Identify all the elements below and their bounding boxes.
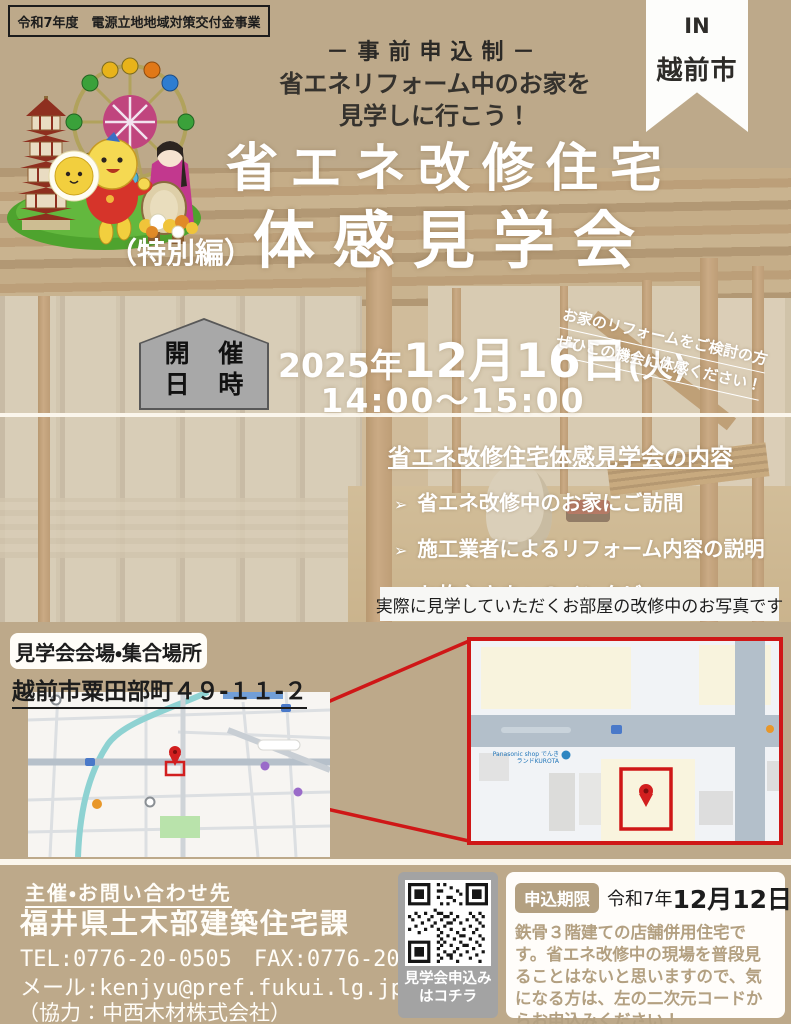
title-prefix: （特別編） bbox=[108, 230, 253, 272]
program-badge: 令和7年度 電源立地地域対策交付金事業 bbox=[8, 5, 270, 37]
venue-label-badge: 見学会会場・集合場所 bbox=[10, 633, 207, 669]
deadline-badge: 申込期限 bbox=[515, 883, 599, 913]
photo-caption: 実際に見学していただくお部屋の改修中のお写真です bbox=[380, 587, 779, 621]
deadline-era: 令和7年 bbox=[607, 885, 672, 911]
main-title-line2-row: （特別編） 体感見学会 bbox=[108, 190, 653, 280]
zoomed-map-poi-icon bbox=[562, 751, 571, 760]
organizer-name: 福井県土木部建築住宅課 bbox=[20, 902, 350, 942]
deadline-note: 鉄骨３階建ての店舗併用住宅です。省エネ改修中の現場を普段見ることはないと思います… bbox=[515, 922, 776, 1024]
map-park bbox=[160, 816, 200, 838]
venue-address: 越前市粟田部町４９-１１-２ bbox=[12, 672, 307, 709]
flyer-poster: 令和7年度 電源立地地域対策交付金事業 －事前申込制－ 省エネリフォーム中のお家… bbox=[0, 0, 791, 1024]
arrow-bullet-icon: ➢ bbox=[394, 495, 407, 514]
zoomed-map: Panasonic shop でんき ランドKUROTA bbox=[467, 637, 783, 845]
ribbon-in-label: IN bbox=[684, 14, 709, 38]
schedule-badge-line2: 日 時 bbox=[165, 369, 254, 400]
schedule-badge-line1: 開 催 bbox=[165, 338, 254, 369]
location-ribbon: IN 越前市 bbox=[646, 0, 748, 132]
ribbon-city-label: 越前市 bbox=[656, 50, 737, 87]
deadline-date: 12月12日 bbox=[672, 880, 791, 916]
qr-panel: 見学会申込み はコチラ bbox=[398, 872, 498, 1018]
deadline-box: 申込期限 令和7年 12月12日 金 鉄骨３階建ての店舗併用住宅です。省エネ改修… bbox=[506, 872, 785, 1018]
cooperation: （協力：中西木材株式会社） bbox=[18, 997, 291, 1024]
map-road-label-pill bbox=[258, 740, 300, 750]
svg-text:ランドKUROTA: ランドKUROTA bbox=[517, 758, 560, 765]
zoomed-map-poi-label: Panasonic shop でんき bbox=[493, 751, 559, 758]
event-time: 14:00～15:00 bbox=[278, 374, 628, 422]
main-title-line2: 体感見学会 bbox=[253, 190, 653, 280]
program-badge-label: 令和7年度 電源立地地域対策交付金事業 bbox=[17, 12, 260, 31]
arrow-bullet-icon: ➢ bbox=[394, 541, 407, 560]
divider-line-bottom bbox=[0, 859, 791, 865]
list-item: ➢施工業者によるリフォーム内容の説明 bbox=[394, 532, 765, 562]
subtitle: 省エネリフォーム中のお家を 見学しに行こう！ bbox=[230, 68, 640, 133]
subtitle-line1: 省エネリフォーム中のお家を bbox=[230, 68, 640, 100]
qr-caption: 見学会申込み はコチラ bbox=[405, 970, 492, 1006]
contents-heading: 省エネ改修住宅体感見学会の内容 bbox=[388, 438, 765, 472]
qr-code bbox=[408, 883, 488, 963]
list-item: ➢省エネ改修中のお家にご訪問 bbox=[394, 486, 765, 516]
zoomed-map-road-v bbox=[735, 641, 765, 841]
overview-map bbox=[28, 692, 330, 857]
pre-apply-label: －事前申込制－ bbox=[250, 34, 620, 66]
